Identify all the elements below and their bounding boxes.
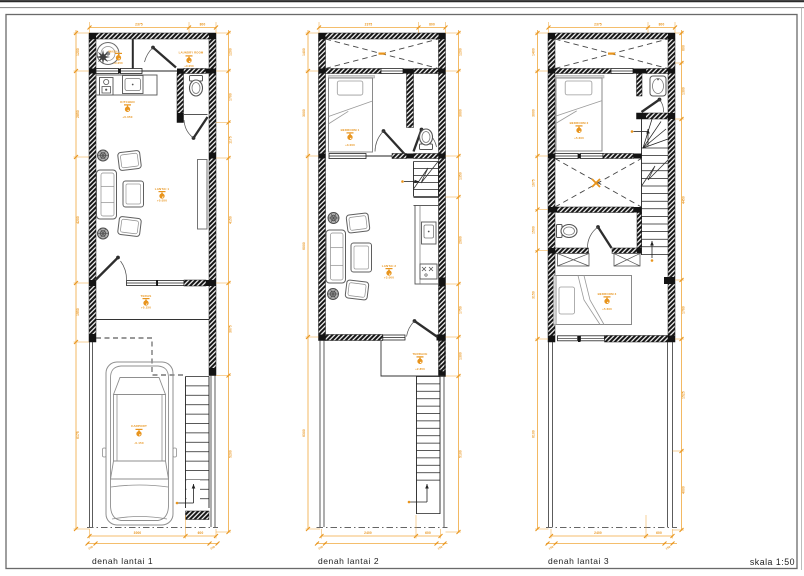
svg-text:6300: 6300 [302,429,306,437]
svg-text:1200: 1200 [459,48,463,56]
svg-text:+0.050: +0.050 [122,115,132,119]
svg-text:4450: 4450 [682,196,686,204]
svg-text:+0.050: +0.050 [184,64,194,68]
svg-text:TERAS: TERAS [141,294,152,298]
svg-text:skala 1:50: skala 1:50 [750,557,795,567]
svg-text:+5.600: +5.600 [574,136,584,140]
svg-text:6100: 6100 [531,430,535,438]
svg-text:5100: 5100 [459,450,463,458]
svg-text:+3.000: +3.000 [384,276,394,280]
svg-text:+3.000: +3.000 [345,143,355,147]
svg-text:600: 600 [656,531,662,535]
svg-text:4000: 4000 [682,486,686,494]
svg-text:-0.150: -0.150 [134,441,144,445]
svg-text:3000: 3000 [134,531,142,535]
svg-text:3150: 3150 [531,291,535,299]
svg-text:TERRACE: TERRACE [412,352,427,356]
svg-text:800: 800 [659,23,665,27]
svg-text:2850: 2850 [76,110,80,118]
svg-text:5200: 5200 [229,450,233,458]
svg-text:6000: 6000 [302,242,306,250]
svg-text:1525: 1525 [682,391,686,399]
svg-text:BEDROOM 3: BEDROOM 3 [598,292,617,296]
svg-text:6175: 6175 [76,431,80,439]
svg-text:denah lantai 2: denah lantai 2 [318,556,379,566]
svg-text:2375: 2375 [135,23,143,27]
svg-text:BEDROOM 2: BEDROOM 2 [570,121,589,125]
svg-text:1400: 1400 [302,48,306,56]
svg-text:+0.050: +0.050 [157,199,167,203]
svg-text:800: 800 [429,23,435,27]
svg-text:LANTAI 2: LANTAI 2 [382,264,397,268]
svg-text:2375: 2375 [365,23,373,27]
svg-text:3000: 3000 [302,109,306,117]
svg-text:600: 600 [198,531,204,535]
svg-text:2900: 2900 [459,236,463,244]
svg-text:600: 600 [682,45,686,51]
svg-text:BEDROOM 1: BEDROOM 1 [341,128,360,132]
svg-text:1400: 1400 [531,48,535,56]
svg-text:+0.050: +0.050 [113,61,123,65]
svg-text:1300: 1300 [682,87,686,95]
svg-text:1750: 1750 [459,306,463,314]
svg-text:denah lantai 1: denah lantai 1 [92,556,153,566]
svg-text:1975: 1975 [531,179,535,187]
svg-text:LANTAI 1: LANTAI 1 [155,187,170,191]
svg-text:3000: 3000 [459,109,463,117]
svg-text:+0.150: +0.150 [141,306,151,310]
svg-text:1350: 1350 [459,172,463,180]
svg-text:1700: 1700 [229,93,233,101]
svg-text:1300: 1300 [459,352,463,360]
svg-text:4200: 4200 [76,216,80,224]
svg-text:1500: 1500 [531,226,535,234]
svg-text:1200: 1200 [76,48,80,56]
svg-text:KITCHEN: KITCHEN [120,100,134,104]
svg-text:LAUNDRY ROOM: LAUNDRY ROOM [179,51,204,55]
svg-text:2400: 2400 [594,531,602,535]
svg-text:+5.600: +5.600 [602,307,612,311]
svg-text:600: 600 [425,531,431,535]
svg-text:3000: 3000 [531,109,535,117]
svg-text:+2.850: +2.850 [415,367,425,371]
svg-text:4150: 4150 [229,216,233,224]
svg-text:2375: 2375 [594,23,602,27]
svg-text:1950: 1950 [76,308,80,316]
svg-text:1175: 1175 [229,136,233,144]
svg-text:denah lantai 3: denah lantai 3 [548,556,609,566]
svg-text:800: 800 [200,23,206,27]
svg-text:CARPORT: CARPORT [131,424,147,428]
svg-text:1200: 1200 [229,48,233,56]
svg-text:1760: 1760 [682,306,686,314]
svg-text:2400: 2400 [364,531,372,535]
svg-text:3075: 3075 [229,325,233,333]
